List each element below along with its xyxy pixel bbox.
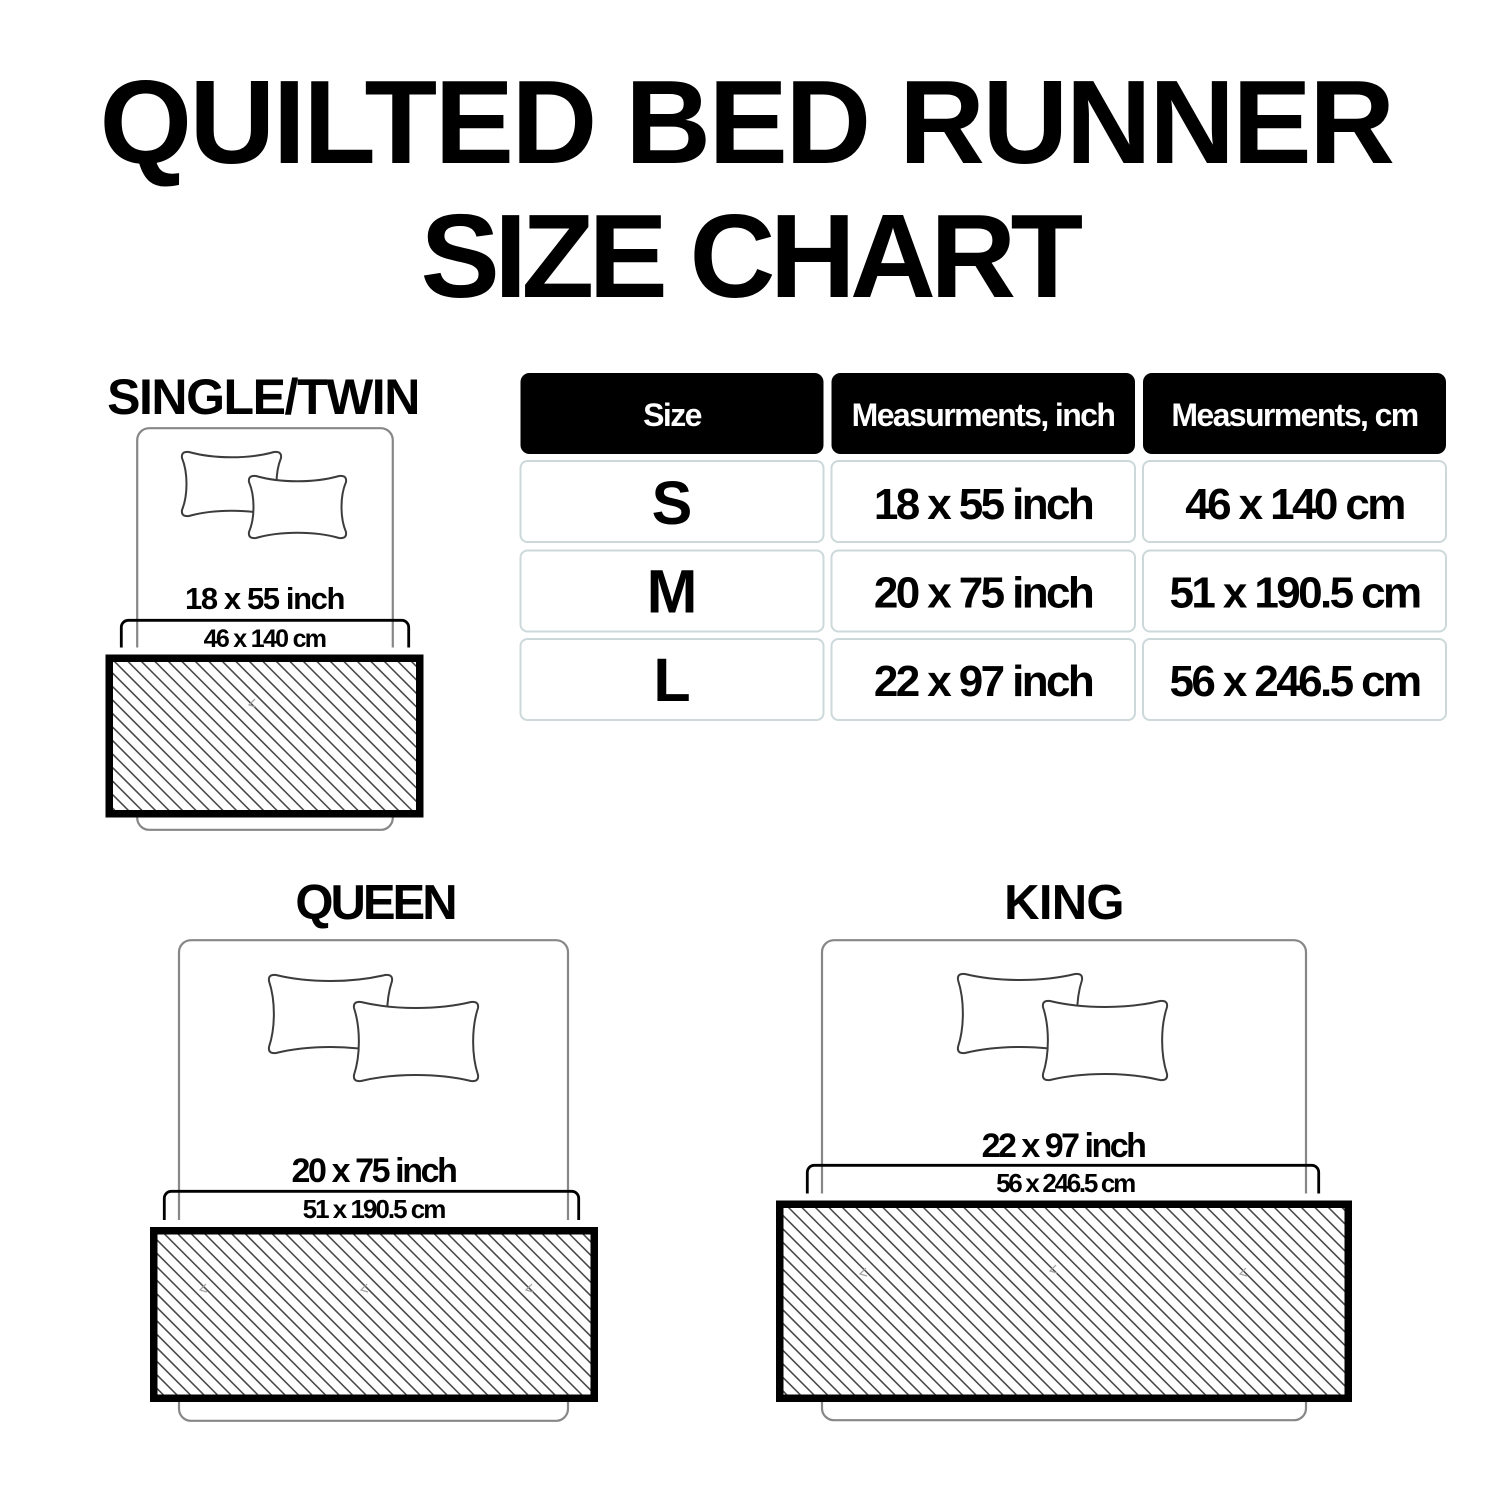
svg-text:Measurments, cm: Measurments, cm — [1171, 397, 1417, 433]
svg-text:18 x 55 inch: 18 x 55 inch — [874, 480, 1093, 529]
svg-text:22 x 97 inch: 22 x 97 inch — [982, 1127, 1146, 1165]
svg-text:KING: KING — [1004, 876, 1124, 930]
svg-text:L: L — [653, 646, 690, 714]
svg-text:SIZE CHART: SIZE CHART — [421, 190, 1083, 323]
svg-text:56 x 246.5 cm: 56 x 246.5 cm — [1170, 657, 1420, 706]
svg-text:51 x 190.5 cm: 51 x 190.5 cm — [1170, 569, 1420, 618]
svg-text:QUILTED BED RUNNER: QUILTED BED RUNNER — [99, 56, 1393, 189]
svg-text:20 x 75 inch: 20 x 75 inch — [292, 1152, 457, 1190]
svg-text:M: M — [647, 558, 698, 626]
svg-text:SINGLE/TWIN: SINGLE/TWIN — [107, 369, 419, 425]
svg-text:QUEEN: QUEEN — [295, 876, 455, 930]
svg-text:18 x 55 inch: 18 x 55 inch — [185, 581, 344, 616]
svg-text:46 x 140 cm: 46 x 140 cm — [1185, 480, 1404, 529]
svg-text:51 x 190.5 cm: 51 x 190.5 cm — [303, 1194, 446, 1224]
svg-text:S: S — [652, 469, 693, 537]
svg-text:22 x 97 inch: 22 x 97 inch — [874, 657, 1093, 706]
svg-text:Size: Size — [643, 397, 701, 433]
svg-text:20 x 75 inch: 20 x 75 inch — [874, 569, 1093, 618]
svg-text:Measurments, inch: Measurments, inch — [852, 397, 1115, 433]
